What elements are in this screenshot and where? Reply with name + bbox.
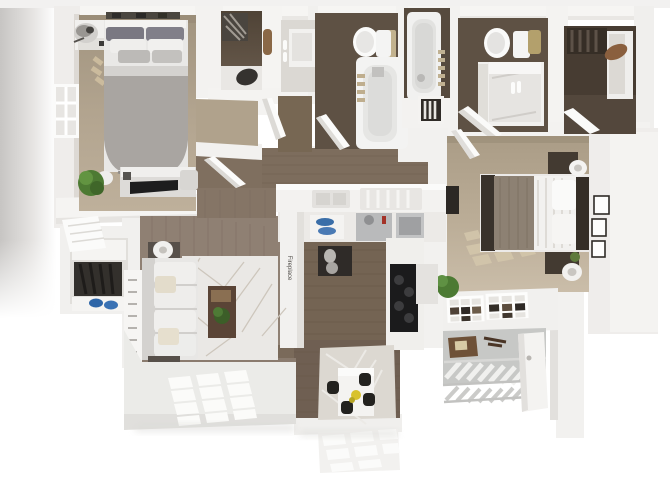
svg-text:Fireplace: Fireplace: [286, 256, 292, 281]
